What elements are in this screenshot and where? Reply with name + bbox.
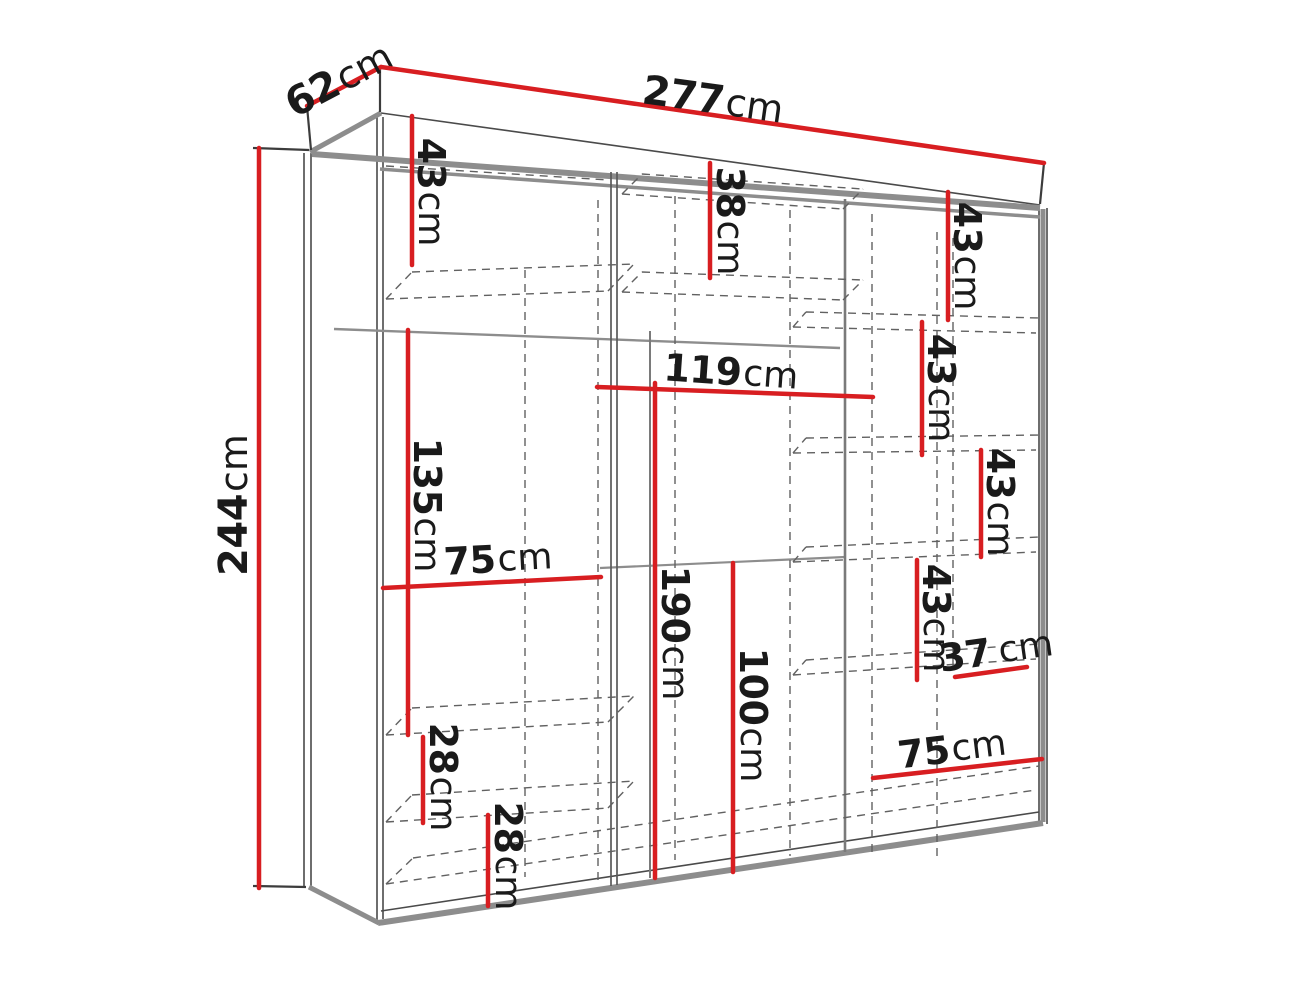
wardrobe-dimension-diagram: 62cm277cm244cm43cm38cm43cm43cm43cm43cm37… bbox=[0, 0, 1310, 983]
dimension-label-right-shelf-2-height: 43cm bbox=[919, 334, 963, 443]
hidden-shelf-depth bbox=[793, 438, 806, 453]
dimension-label-overall-width: 277cm bbox=[640, 67, 787, 132]
wardrobe-structure bbox=[253, 67, 1047, 923]
hidden-shelf-edge bbox=[622, 292, 843, 300]
fixed-shelf-line-2 bbox=[600, 557, 845, 568]
diagram-canvas: 62cm277cm244cm43cm38cm43cm43cm43cm43cm37… bbox=[0, 0, 1310, 983]
hidden-floor-depth bbox=[386, 858, 413, 884]
width-extension-right bbox=[1040, 163, 1044, 204]
hidden-shelf-depth bbox=[608, 781, 634, 808]
hidden-shelf-depth bbox=[386, 272, 412, 299]
top-left-depth-edge bbox=[310, 113, 381, 152]
dimension-label-right-shelf-3-height: 43cm bbox=[978, 448, 1022, 557]
dimension-label-left-section-width-75: 75cm bbox=[442, 534, 553, 584]
dimension-label-right-shelf-1-height: 43cm bbox=[945, 202, 989, 311]
dimension-label-left-drawer-gap-28-lower: 28cm bbox=[486, 802, 530, 911]
bottom-front-edge bbox=[378, 823, 1043, 923]
hidden-shelf-edge bbox=[793, 327, 1036, 333]
hidden-shelf-depth bbox=[608, 696, 634, 722]
hidden-shelf-edge bbox=[386, 291, 608, 299]
hidden-shelf-edge bbox=[386, 722, 608, 735]
plinth-top-line bbox=[381, 812, 1039, 911]
bottom-left-depth-edge bbox=[309, 887, 379, 923]
dimension-label-left-top-shelf-height: 43cm bbox=[409, 138, 453, 247]
hidden-shelf-depth bbox=[608, 264, 634, 291]
hidden-shelf-depth bbox=[793, 312, 806, 327]
dimension-label-middle-hanging-height-100: 100cm bbox=[731, 648, 775, 783]
dimension-label-middle-shelf-width-119: 119cm bbox=[662, 345, 800, 398]
hidden-shelf-depth bbox=[386, 795, 412, 822]
dimension-label-left-drawer-gap-28-upper: 28cm bbox=[421, 723, 465, 832]
hidden-shelf-edge bbox=[412, 264, 634, 272]
hidden-shelf-depth bbox=[622, 272, 642, 292]
height-tick-top bbox=[253, 148, 309, 150]
dimension-annotations: 62cm277cm244cm43cm38cm43cm43cm43cm43cm37… bbox=[211, 33, 1056, 911]
dimension-label-middle-top-shelf-height: 38cm bbox=[708, 167, 752, 276]
dimension-label-overall-height: 244cm bbox=[211, 434, 257, 576]
hidden-shelf-edge bbox=[806, 312, 1039, 318]
hidden-shelf-edge bbox=[412, 696, 634, 708]
dimension-label-middle-hanging-height-190: 190cm bbox=[653, 566, 697, 701]
hidden-shelf-depth bbox=[793, 660, 806, 675]
